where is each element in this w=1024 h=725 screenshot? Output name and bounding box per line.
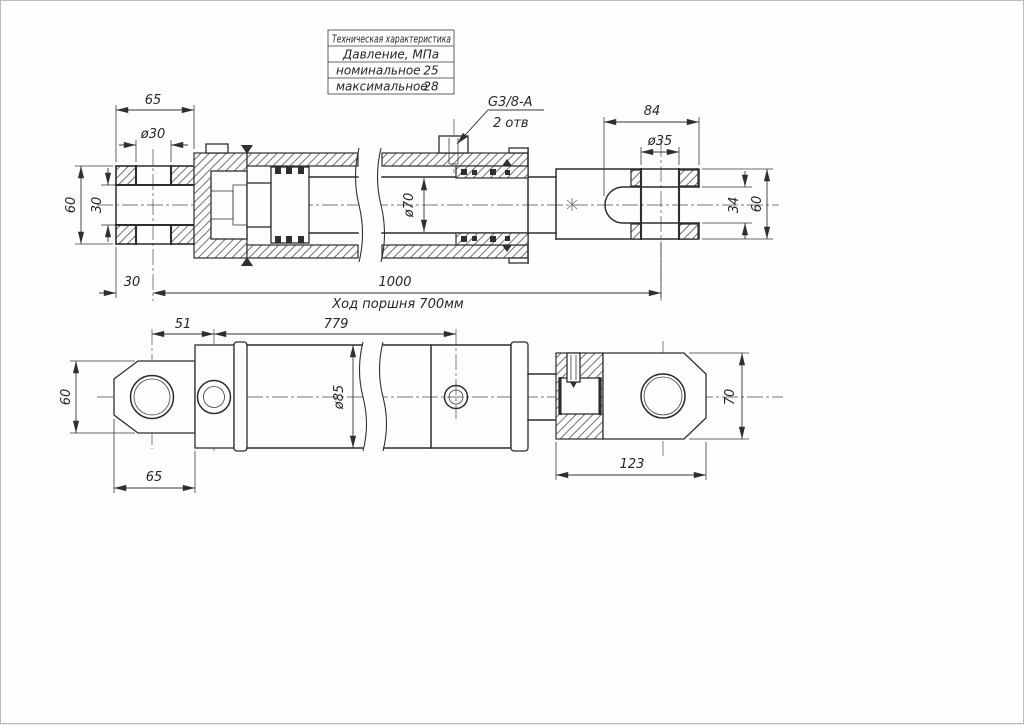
drawing-sheet: Техническая характеристика Давление, МПа… [0, 0, 1024, 724]
dim-pin-offset: 30 [124, 275, 141, 290]
dim-pin-to-pin: 1000 [378, 275, 411, 290]
table-row-max-value: 28 [423, 80, 439, 94]
dim-port-offset: 51 [175, 317, 192, 332]
dim-rod-dia: ø70 [402, 193, 417, 219]
dim-clevis-depth: 84 [644, 104, 661, 119]
dim-eye-slot-width: 30 [90, 197, 105, 214]
top-view-dimensions: 65 ø30 60 30 30 1000 [64, 93, 773, 312]
top-view-section: 65 ø30 60 30 30 1000 [64, 93, 779, 312]
dim-b-eye-height: 60 [59, 389, 74, 406]
dim-eye-hole-dia: ø30 [140, 127, 166, 142]
rod-end-bottom [556, 353, 706, 439]
dim-clevis-height: 60 [750, 196, 765, 213]
rod-clevis [556, 169, 699, 239]
dim-b-eye-length: 65 [146, 470, 163, 485]
rear-eye-bottom [114, 361, 195, 433]
rear-cap-bottom [195, 342, 247, 451]
table-subheader: Давление, МПа [342, 48, 439, 62]
spec-table: Техническая характеристика Давление, МПа… [328, 30, 454, 94]
table-row-nominal-label: номинальное [336, 64, 421, 78]
stroke-note: Ход поршня 700мм [331, 297, 464, 312]
dim-port-spacing: 779 [324, 317, 349, 332]
dim-eye-height: 60 [64, 197, 79, 214]
dim-clevis-hole-dia: ø35 [647, 134, 673, 149]
table-row-max-label: максимальное [336, 80, 428, 94]
dim-clevis-slot-width: 34 [727, 197, 742, 214]
break-lines-top-view [356, 148, 385, 262]
dim-rod-eye-height: 70 [723, 389, 738, 406]
thread-mark [567, 198, 577, 211]
port-holes-label: 2 отв [493, 116, 529, 131]
table-title: Техническая характеристика [332, 33, 451, 46]
gland [456, 166, 528, 245]
hydraulic-cylinder-drawing: Техническая характеристика Давление, МПа… [1, 1, 1024, 725]
barrel-bottom [247, 341, 528, 455]
dim-outer-dia: ø85 [332, 385, 347, 411]
piston [247, 167, 309, 243]
table-row-nominal-value: 25 [423, 64, 438, 78]
rear-cap [194, 144, 247, 258]
port-thread-label: G3/8-A [488, 95, 533, 110]
bottom-view: 60 51 779 ø85 65 123 70 [59, 317, 783, 493]
dim-eye-length: 65 [145, 93, 162, 108]
dim-rod-end-length: 123 [620, 457, 645, 472]
